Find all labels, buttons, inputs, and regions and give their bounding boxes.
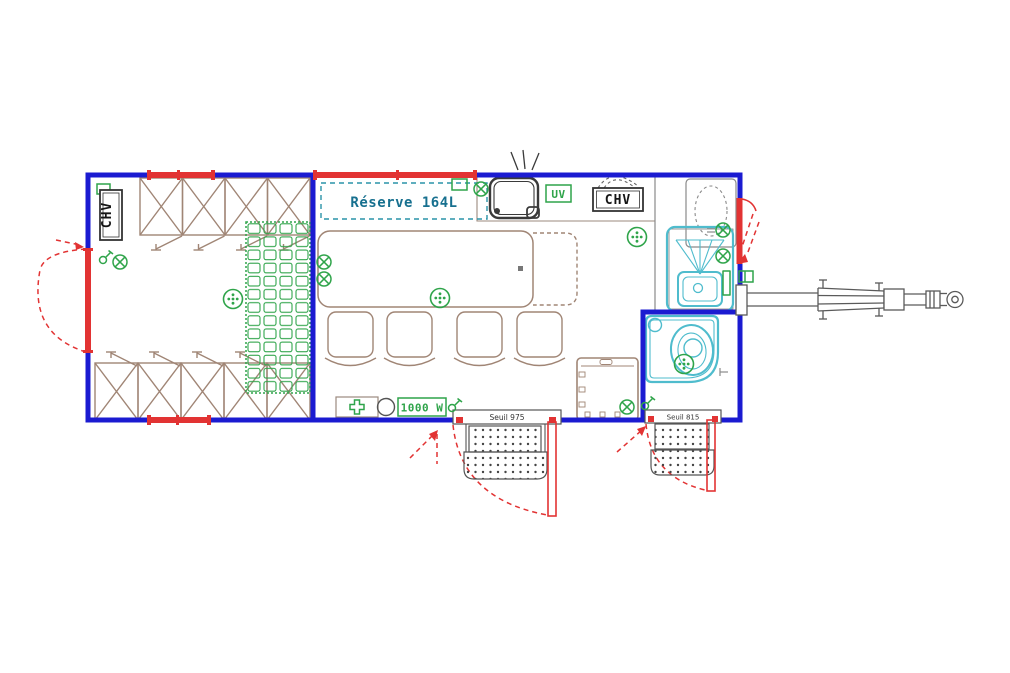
main-entry-steps: Seuil 975 [410,410,561,516]
power-outlet-icon [317,255,331,269]
trailer-floor-plan: Réserve 164L UV CHV [0,0,1010,673]
wc-room-walls [643,312,740,420]
right-vent-label: CHV [605,193,631,208]
sink [490,178,539,218]
switches [100,251,656,412]
left-vent-chv: CHV [97,184,122,240]
window-bottom-left [147,415,211,425]
washbasin [667,227,733,311]
water-tank-label: Réserve 164L [350,195,457,211]
right-exterior-door [737,198,760,264]
chairs [325,312,565,366]
ceiling-light-icon [431,289,450,308]
power-outlet-icon [474,182,488,196]
right-vent-chv: CHV [593,176,643,211]
uv-unit: UV [546,185,571,202]
heater-power-label: 1000 W [401,402,444,415]
power-outlet-icon [620,400,634,414]
power-outlet-icon [716,249,730,263]
power-outlet-icon [113,255,127,269]
toilet [646,316,728,382]
ceiling-light-icon [224,290,243,309]
water-tank: Réserve 164L [321,179,487,219]
power-outlet-icon [716,223,730,237]
roof-vent-marks [511,150,539,170]
wc-door-threshold-label: Seuil 815 [667,414,700,422]
main-door-threshold-label: Seuil 975 [490,413,525,422]
dining-table [318,231,577,307]
storage-rack [246,222,310,393]
left-exterior-door [38,240,93,353]
ceiling-light-icon [675,355,694,374]
ceiling-light-icon [628,228,647,247]
tow-hitch [736,280,963,319]
power-outlet-icon [317,272,331,286]
switch-icon [100,251,114,264]
shower-tray [686,179,736,247]
floor-plan-canvas: Réserve 164L UV CHV [0,0,1010,673]
left-vent-label: CHV [100,202,115,228]
electric-heater: 1000 W [336,397,446,417]
uv-label: UV [551,188,565,201]
fridge-cabinet [577,358,638,420]
